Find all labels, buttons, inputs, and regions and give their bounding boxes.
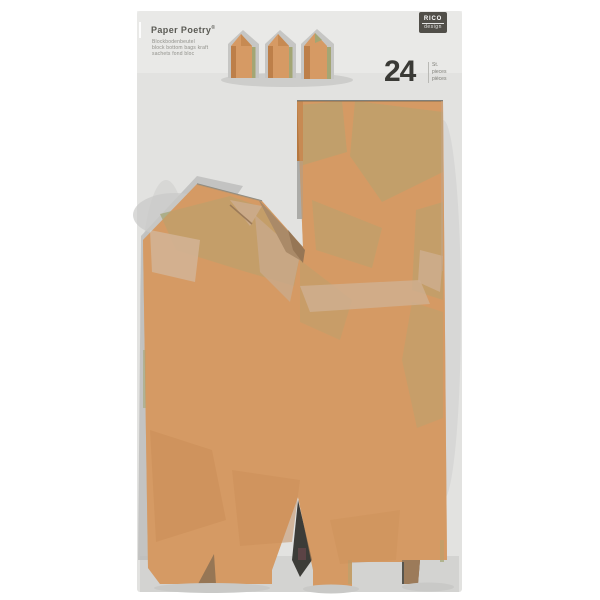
bag-foot-shadow	[303, 585, 359, 594]
logo-text-top: RICO	[422, 16, 444, 24]
bag-gusset-accent	[289, 47, 293, 78]
bag-left-fold	[231, 46, 236, 78]
bag-left-fold	[268, 46, 273, 78]
package-gloss-line	[139, 22, 141, 38]
piece-count: 24	[384, 55, 415, 89]
unit-line: pièces	[432, 76, 446, 83]
brand-title-text: Paper Poetry	[151, 25, 211, 35]
product-photo: Paper Poetry® Blockbodenbeutel block bot…	[0, 0, 600, 600]
bag-left-fold	[304, 46, 310, 79]
bag-foot-shadow	[402, 583, 454, 592]
product-artwork	[0, 0, 600, 600]
bag-gusset-accent	[327, 47, 331, 79]
unit-line: St.	[432, 62, 446, 69]
unit-line: pieces	[432, 69, 446, 76]
registered-mark: ®	[211, 25, 215, 31]
brand-subtitle: Blockbodenbeutel block bottom bags kraft…	[152, 39, 208, 57]
bag-gusset-accent	[252, 47, 256, 78]
logo-text-bottom: design	[424, 24, 442, 30]
rico-design-logo: RICO design	[419, 12, 447, 33]
subtitle-line: sachets fond bloc	[152, 51, 208, 57]
bag-foot-shadow	[154, 583, 270, 593]
bag-bottom-tint	[298, 548, 306, 560]
piece-count-units: St. pieces pièces	[428, 62, 446, 83]
brand-title: Paper Poetry®	[151, 25, 215, 35]
